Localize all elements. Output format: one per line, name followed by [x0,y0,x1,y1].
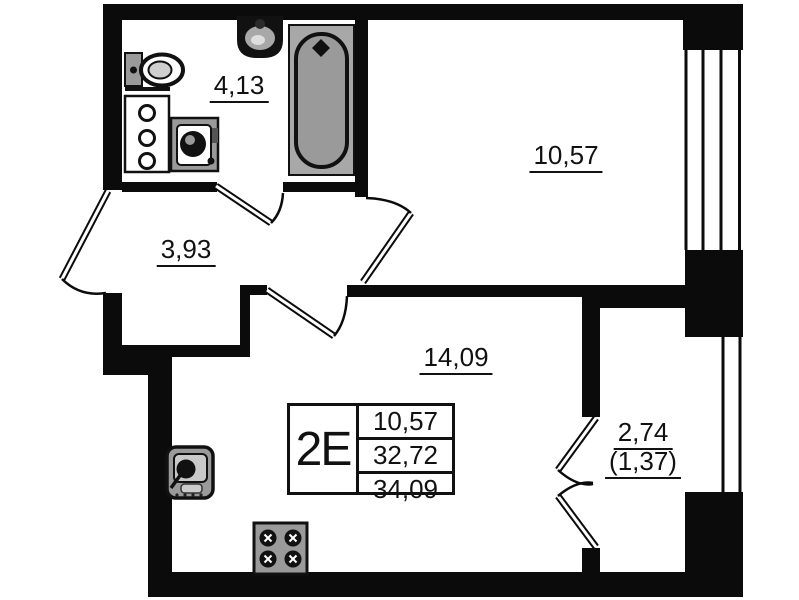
hallway-area-label: 3,93 [157,236,216,267]
bathtub [289,25,354,175]
wall-bath-right [355,18,368,197]
bedroom-area-label: 10,57 [529,142,602,173]
wall-hall-bottom [240,285,267,295]
wall-niche-bottom [103,345,250,357]
kitchen-living-area-label: 14,09 [419,344,492,375]
walls [103,4,743,597]
wall-balcony-left-upper [582,297,600,417]
unit-areas: 10,57 32,72 34,09 [359,406,452,492]
wall-corner-block-bottom-right [685,492,743,577]
kitchen-door [267,290,347,336]
washing-machine [171,118,218,171]
floor-plan: 4,13 10,57 3,93 14,09 2,74 (1,37) 2Е 10,… [0,0,799,600]
entry-door [62,191,108,294]
floor-plan-drawing [0,0,799,600]
unit-area: 32,72 [359,440,452,474]
bathroom-cabinet [125,96,169,172]
unit-type-label: 2Е [290,406,359,492]
bedroom-door [363,198,411,282]
wall-top [103,4,743,20]
wall-bottom [148,572,743,597]
wall-bath-bottom-left [122,182,217,192]
wall-bedroom-bottom-thick [600,285,685,308]
bathroom-door [216,186,283,223]
balcony-coefficient-area-label: (1,37) [605,448,681,479]
toilet [125,53,183,91]
bathroom-sink [237,16,283,58]
unit-living-area: 10,57 [359,406,452,440]
bathroom-area-label: 4,13 [210,72,269,103]
wall-balcony-left-lower [582,548,600,572]
wall-bedroom-bottom-thin [347,285,600,297]
wall-left-upper [103,20,122,190]
balcony-door [558,418,596,547]
window-bedroom [686,50,740,250]
window-balcony [723,337,740,492]
unit-total-area: 34,09 [359,474,452,505]
wall-corner-block-top-right [683,18,743,50]
wall-pier-right [685,250,743,337]
unit-stamp: 2Е 10,57 32,72 34,09 [287,403,455,495]
stove [254,523,307,574]
kitchen-sink [167,447,213,498]
wall-niche-right [240,285,250,356]
